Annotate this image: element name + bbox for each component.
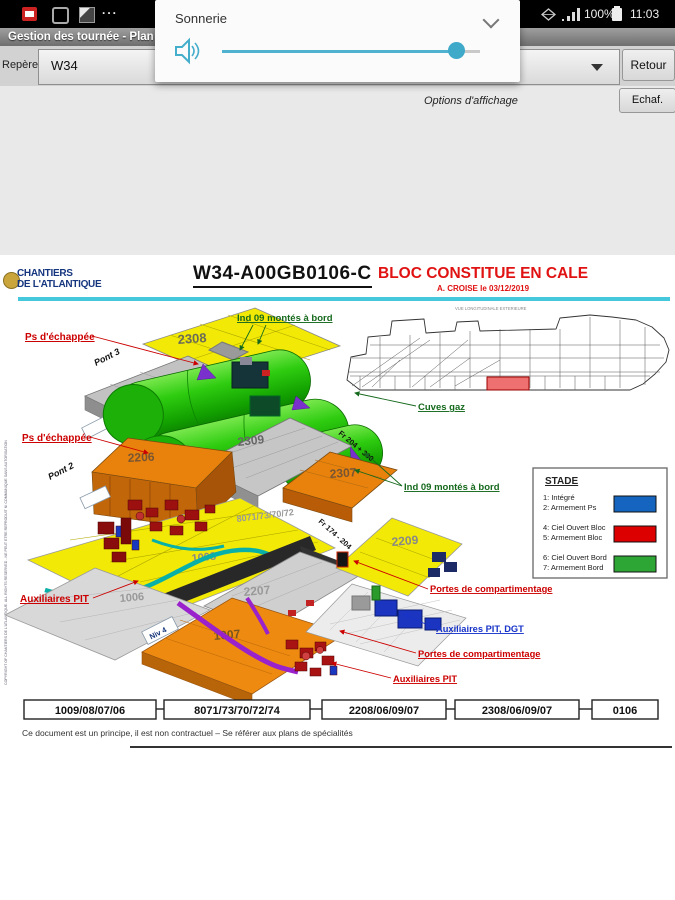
profile-caption: VUE LONGITUDINALE EXTERIEURE	[455, 306, 527, 311]
document-author-date: A. CROISE le 03/12/2019	[437, 284, 529, 293]
svg-text:2308/06/09/07: 2308/06/09/07	[482, 705, 552, 717]
svg-text:8071/73/70/72/74: 8071/73/70/72/74	[194, 705, 281, 717]
label-portes-2: Portes de compartimentage	[418, 649, 540, 659]
stade-legend: STADE 1: Intégré 2: Armement Ps 4: Ciel …	[533, 468, 667, 578]
app-notification-icon[interactable]	[22, 7, 37, 21]
battery-percent: 100%	[584, 0, 615, 28]
svg-text:6: Ciel Ouvert Bord: 6: Ciel Ouvert Bord	[543, 553, 607, 562]
echaf-button[interactable]: Echaf.	[619, 88, 675, 113]
svg-text:5: Armement Bloc: 5: Armement Bloc	[543, 533, 602, 542]
svg-text:2: Armement Ps: 2: Armement Ps	[543, 503, 597, 512]
label-aux-pit-2: Auxiliaires PIT	[393, 674, 457, 684]
block-number: 2207	[243, 583, 271, 599]
content-background: Options d'affichage Echaf.	[0, 86, 675, 255]
block-diagram: COPYRIGHT OF CHANTIERS DE L'ATLANTIQUE. …	[0, 300, 675, 720]
document-title: BLOC CONSTITUE EN CALE	[378, 265, 588, 283]
deck-label-pont2: Pont 2	[46, 460, 75, 481]
label-aux-pit-1: Auxiliaires PIT	[20, 594, 89, 605]
label-ps-echappee-1: Ps d'échappée	[25, 332, 95, 343]
spinner-dropdown-icon[interactable]	[591, 64, 603, 71]
legend-swatch-red	[614, 526, 656, 542]
block-number: 2308	[177, 330, 207, 347]
block-plan-document: CHANTIERS DE L'ATLANTIQUE W34-A00GB0106-…	[0, 255, 675, 760]
label-cuves-gaz: Cuves gaz	[418, 402, 465, 413]
android-screen: ... 100% 11:03 Gestion des tournée - Pla…	[0, 0, 675, 900]
more-notifications-dots: ...	[102, 0, 118, 24]
label-ind09-2: Ind 09 montés à bord	[404, 482, 500, 493]
bottom-code-boxes: 1009/08/07/06 8071/73/70/72/74 2208/06/0…	[24, 700, 658, 719]
disclaimer-text: Ce document est un principe, il est non …	[22, 728, 353, 738]
company-name: CHANTIERS DE L'ATLANTIQUE	[17, 268, 101, 290]
svg-text:1: Intégré: 1: Intégré	[543, 493, 575, 502]
footer-divider	[130, 746, 672, 748]
block-number: 2209	[391, 533, 419, 549]
side-copyright: COPYRIGHT OF CHANTIERS DE L'ATLANTIQUE. …	[4, 440, 8, 685]
label-aux-pit-dgt: Auxiliaires PIT, DGT	[436, 624, 524, 634]
legend-swatch-blue	[614, 496, 656, 512]
display-options-label[interactable]: Options d'affichage	[424, 95, 518, 107]
volume-stream-label: Sonnerie	[175, 11, 227, 26]
screenshot-icon[interactable]	[79, 7, 95, 23]
volume-slider-thumb[interactable]	[448, 42, 465, 59]
svg-text:0106: 0106	[613, 705, 637, 717]
svg-text:4: Ciel Ouvert Bloc: 4: Ciel Ouvert Bloc	[543, 523, 606, 532]
volume-popup: Sonnerie	[155, 0, 520, 82]
ship-profile-view: VUE LONGITUDINALE EXTERIEURE	[347, 306, 669, 390]
speaker-icon[interactable]	[173, 37, 201, 65]
deck-label-pont3: Pont 3	[92, 346, 121, 367]
label-portes-1: Portes de compartimentage	[430, 584, 552, 594]
legend-title: STADE	[545, 476, 578, 487]
app-outline-icon[interactable]	[52, 7, 69, 24]
label-ps-echappee-2: Ps d'échappée	[22, 433, 92, 444]
legend-swatch-green	[614, 556, 656, 572]
battery-icon	[612, 8, 622, 21]
chevron-down-icon[interactable]	[483, 12, 500, 29]
block-number: 2307	[329, 465, 357, 481]
label-ind09-1: Ind 09 montés à bord	[237, 313, 333, 324]
svg-text:2208/06/09/07: 2208/06/09/07	[349, 705, 419, 717]
svg-text:1009/08/07/06: 1009/08/07/06	[55, 705, 125, 717]
block-number: 2309	[237, 432, 265, 449]
vpn-diamond-icon	[541, 8, 556, 21]
retour-button[interactable]: Retour	[622, 49, 675, 81]
document-code: W34-A00GB0106-C	[193, 263, 372, 288]
repere-value: W34	[51, 58, 78, 73]
block-number: 2206	[127, 450, 155, 465]
highlighted-block-cell	[487, 377, 529, 390]
signal-bars-icon	[562, 8, 580, 21]
blue-machinery	[375, 600, 397, 616]
compartment-door	[337, 552, 348, 567]
clock: 11:03	[630, 0, 659, 28]
block-number: 1006	[119, 591, 144, 605]
svg-text:7: Armement Bord: 7: Armement Bord	[543, 563, 603, 572]
volume-slider-track[interactable]	[222, 50, 480, 53]
repere-label: Repère	[2, 59, 38, 71]
